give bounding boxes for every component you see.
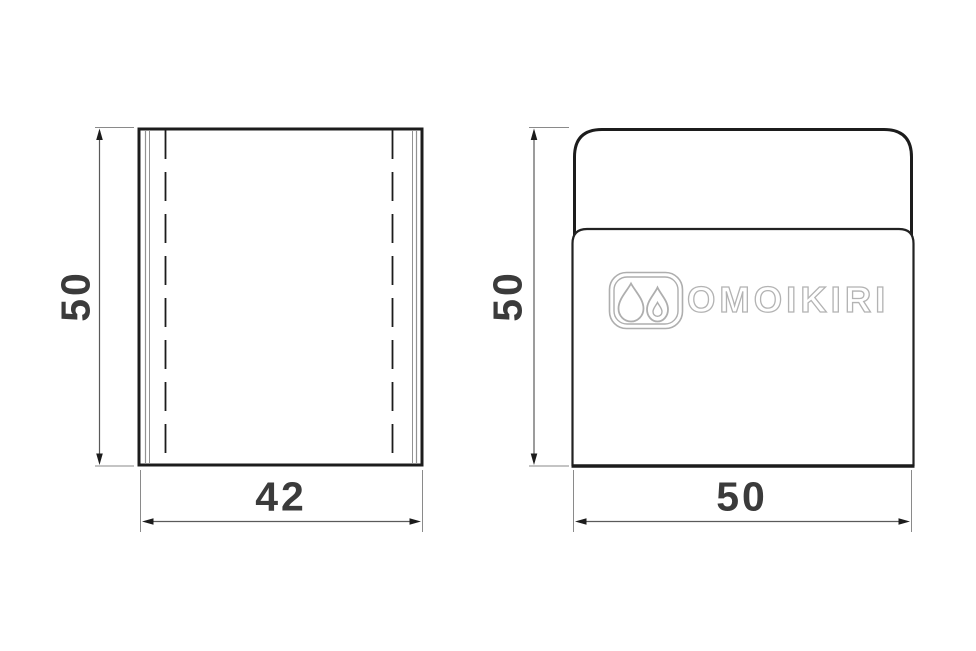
- arrowhead-right: [899, 518, 911, 525]
- front-view-height-label: 50: [488, 270, 529, 322]
- arrowhead-right: [410, 518, 422, 525]
- side-view: [139, 129, 422, 465]
- arrowhead-down: [531, 454, 538, 466]
- front-view-height-dimension: [529, 128, 569, 467]
- front-view: OMOIKIRI: [572, 130, 915, 467]
- side-view-height-dimension: [95, 128, 134, 467]
- logo-brand-text: OMOIKIRI: [687, 279, 889, 320]
- drawing-canvas: OMOIKIRI 50 42 50 50: [0, 0, 976, 651]
- side-view-height-label: 50: [56, 270, 97, 322]
- arrowhead-down: [96, 454, 103, 466]
- side-view-width-label: 42: [255, 477, 307, 518]
- arrowhead-left: [142, 518, 154, 525]
- arrowhead-up: [96, 129, 103, 141]
- arrowhead-left: [575, 518, 587, 525]
- side-view-body-outline: [139, 129, 422, 465]
- front-view-width-label: 50: [716, 477, 768, 518]
- drawing-linework: OMOIKIRI: [0, 0, 976, 651]
- front-view-front-plate-outline: [573, 229, 914, 466]
- arrowhead-up: [531, 129, 538, 141]
